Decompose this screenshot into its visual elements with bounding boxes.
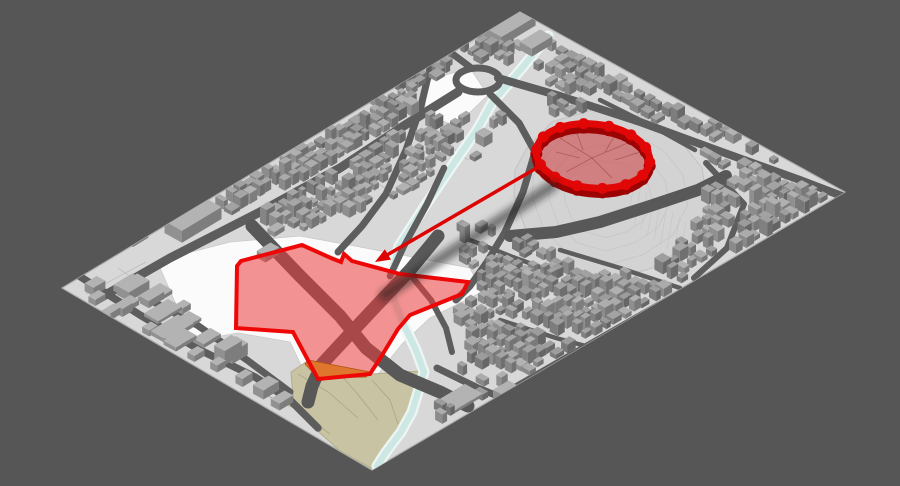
model-viewport[interactable] — [0, 0, 900, 486]
site-model-render — [0, 0, 900, 486]
